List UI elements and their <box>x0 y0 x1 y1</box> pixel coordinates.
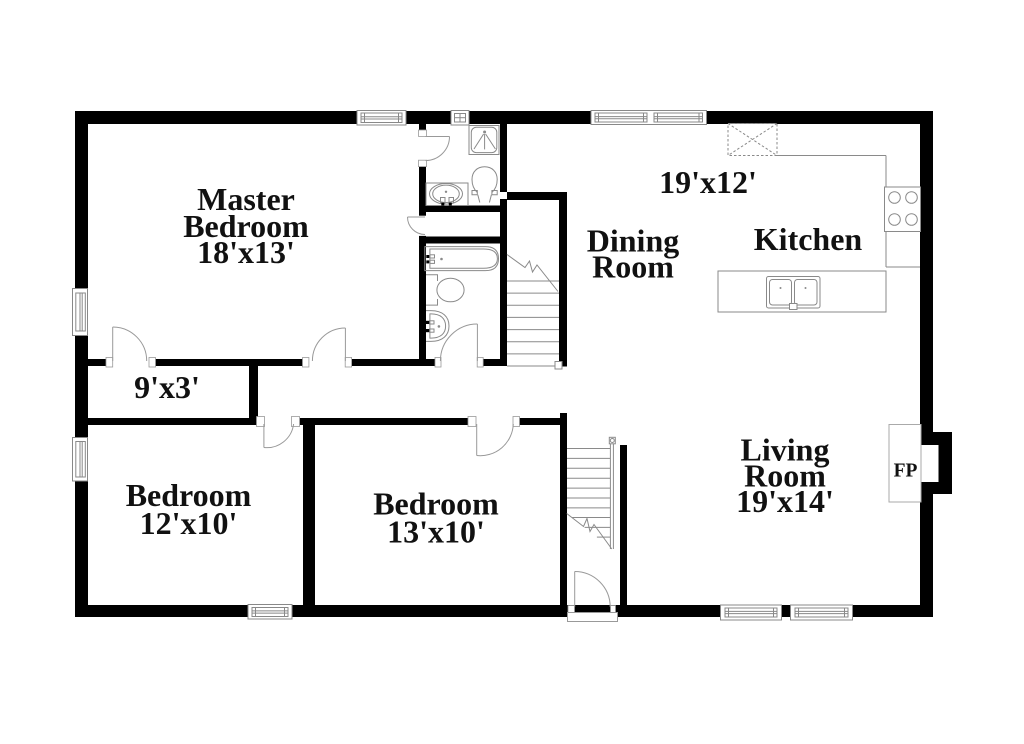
svg-text:13'x10': 13'x10' <box>387 514 485 550</box>
svg-text:Room: Room <box>592 249 674 285</box>
svg-text:18'x13': 18'x13' <box>197 234 295 270</box>
svg-text:Kitchen: Kitchen <box>754 221 863 257</box>
svg-text:12'x10': 12'x10' <box>140 505 238 541</box>
svg-text:9'x3': 9'x3' <box>134 369 200 405</box>
svg-text:FP: FP <box>894 461 918 482</box>
svg-text:19'x12': 19'x12' <box>659 164 757 200</box>
svg-text:19'x14': 19'x14' <box>736 483 834 519</box>
